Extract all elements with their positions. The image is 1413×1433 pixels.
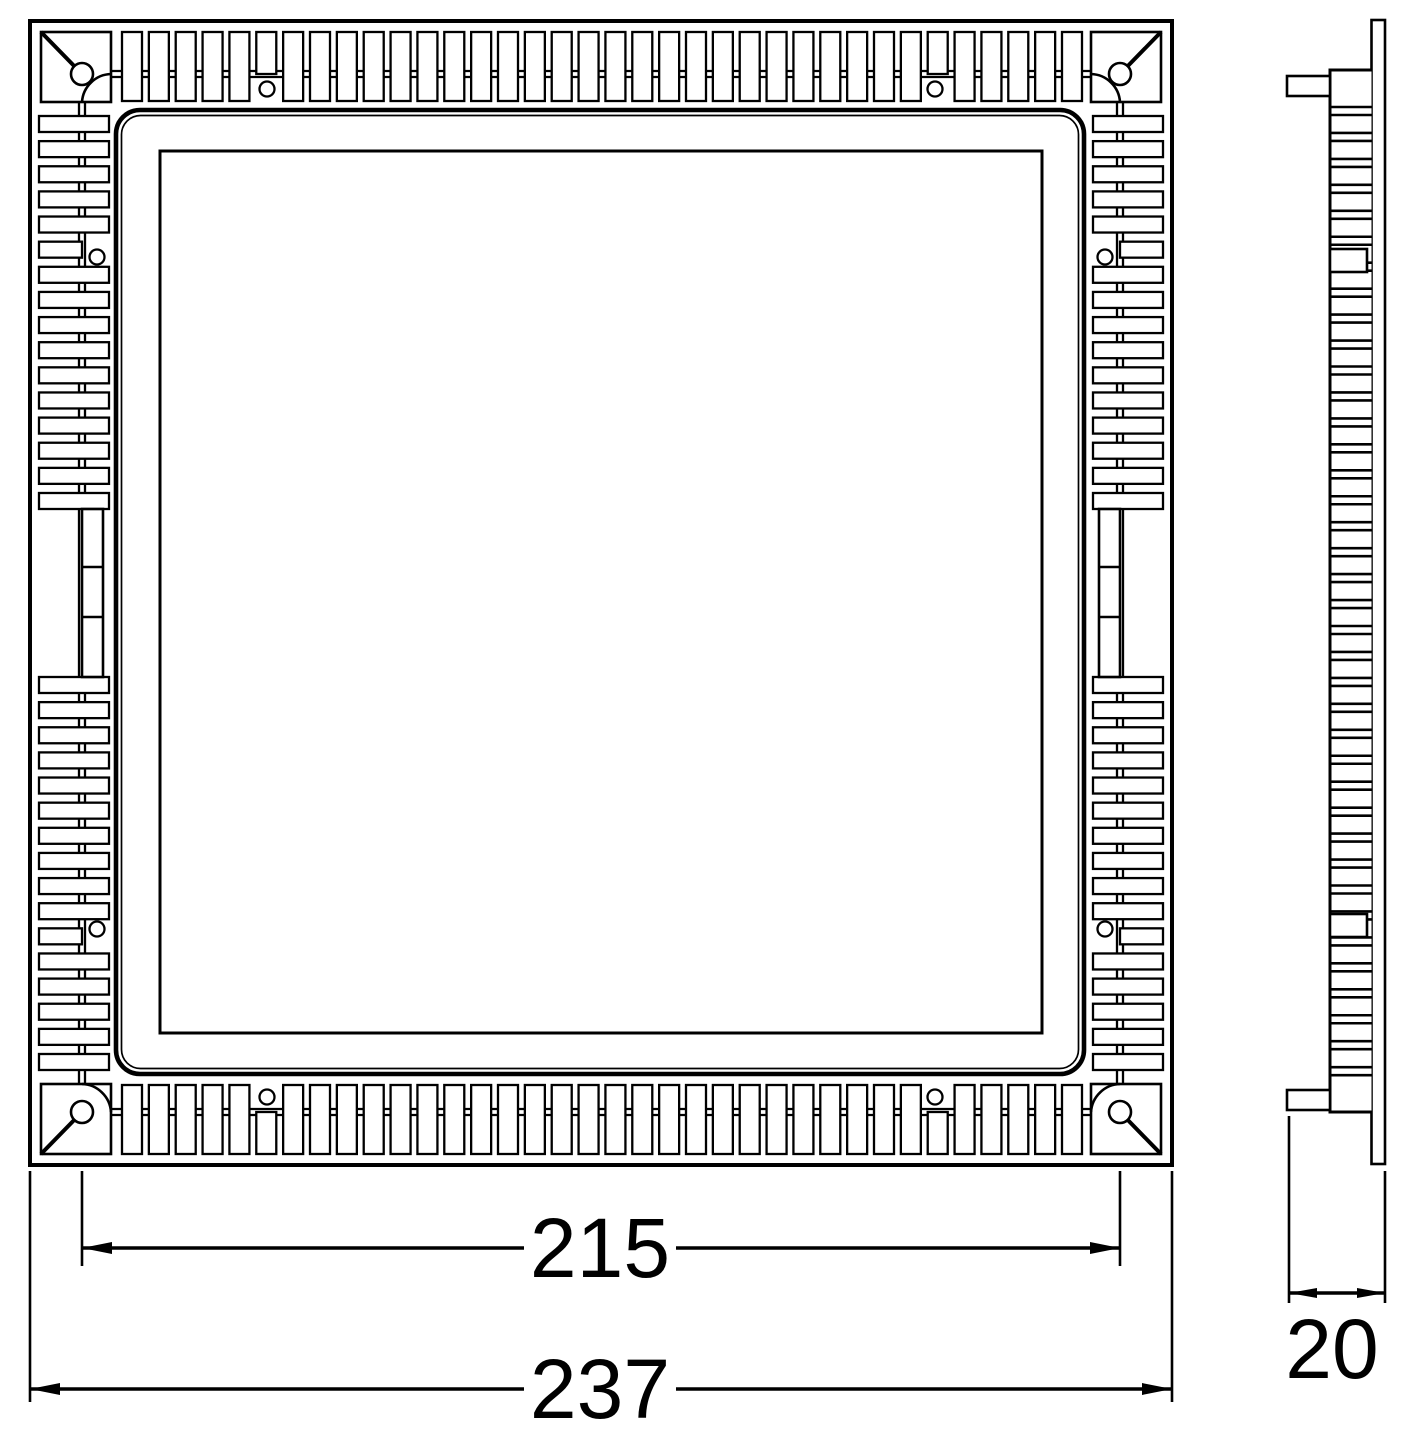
dimension-arrow xyxy=(1090,1242,1120,1254)
heatsink-fin xyxy=(39,702,109,718)
heatsink-fin xyxy=(39,1029,109,1045)
heatsink-fin xyxy=(149,32,169,101)
heatsink-fin xyxy=(39,752,109,768)
heatsink-fin xyxy=(955,1085,975,1154)
heatsink-fin xyxy=(1093,828,1163,844)
dimension-arrow xyxy=(1357,1288,1385,1298)
heatsink-fin xyxy=(256,32,276,74)
heatsink-fin xyxy=(256,1112,276,1154)
heatsink-fin xyxy=(1093,443,1163,459)
heatsink-fin xyxy=(283,1085,303,1154)
heatsink-fin xyxy=(820,32,840,101)
heatsink-fin xyxy=(122,32,142,101)
heatsink-fin xyxy=(847,1085,867,1154)
heatsink-fin xyxy=(740,32,760,101)
heatsink-fin xyxy=(1062,32,1082,101)
heatsink-fin xyxy=(1093,116,1163,132)
heatsink-fin xyxy=(847,32,867,101)
bezel-outer xyxy=(116,110,1084,1074)
heatsink-fin xyxy=(39,878,109,894)
heatsink-fin xyxy=(1093,418,1163,434)
heatsink-fin xyxy=(1008,32,1028,101)
spring-arm xyxy=(1128,1120,1161,1154)
heatsink-fin xyxy=(1093,1054,1163,1070)
dimension-arrow xyxy=(1289,1288,1317,1298)
heatsink-fin xyxy=(337,32,357,101)
screw-hole xyxy=(928,1090,943,1105)
heatsink-fin xyxy=(39,317,109,333)
heatsink-fin xyxy=(1035,32,1055,101)
screw-hole xyxy=(1098,250,1113,265)
heatsink-fin xyxy=(39,267,109,283)
side-heatsink-body xyxy=(1330,70,1372,1112)
heatsink-fin xyxy=(176,32,196,101)
heatsink-fin xyxy=(1062,1085,1082,1154)
side-front-flange xyxy=(1372,20,1386,1164)
screw-hole xyxy=(1098,922,1113,937)
light-panel xyxy=(160,151,1042,1033)
side-mount-tab-top xyxy=(1287,76,1330,96)
heatsink-fin xyxy=(1093,1029,1163,1045)
heatsink-fin xyxy=(39,953,109,969)
heatsink-fin xyxy=(39,141,109,157)
heatsink-fin xyxy=(1093,1004,1163,1020)
heatsink-fin xyxy=(1093,903,1163,919)
heatsink-fin xyxy=(686,1085,706,1154)
heatsink-fin xyxy=(955,32,975,101)
heatsink-fin xyxy=(632,32,652,101)
heatsink-fin xyxy=(1093,392,1163,408)
heatsink-fin xyxy=(525,32,545,101)
heatsink-fin xyxy=(39,392,109,408)
heatsink-fin xyxy=(793,32,813,101)
heatsink-fin xyxy=(39,443,109,459)
heatsink-fin xyxy=(39,1054,109,1070)
heatsink-fin xyxy=(229,1085,249,1154)
heatsink-fin xyxy=(820,1085,840,1154)
heatsink-fin xyxy=(39,116,109,132)
heatsink-fin xyxy=(39,367,109,383)
mid-latch-bars xyxy=(82,509,1120,677)
drawing-canvas: 215 237 20 xyxy=(0,0,1413,1433)
heatsink-fin xyxy=(1093,979,1163,995)
heatsink-fin xyxy=(39,418,109,434)
spring-pivot xyxy=(1109,63,1131,85)
heatsink-fin xyxy=(337,1085,357,1154)
heatsink-fin xyxy=(1093,166,1163,182)
heatsink-fin xyxy=(1093,468,1163,484)
spring-arm xyxy=(41,1120,74,1154)
spring-arm xyxy=(41,32,74,66)
heatsink-fin xyxy=(901,1085,921,1154)
heatsink-fin xyxy=(1093,317,1163,333)
heatsink-fin xyxy=(39,778,109,794)
heatsink-fin xyxy=(176,1085,196,1154)
heatsink-fin xyxy=(1093,367,1163,383)
heatsink-fin xyxy=(39,828,109,844)
rails xyxy=(79,71,1123,1115)
heatsink-fin xyxy=(605,32,625,101)
side-screw-boss-upper xyxy=(1330,249,1367,272)
heatsink-fin xyxy=(1035,1085,1055,1154)
heatsink-fin xyxy=(1093,878,1163,894)
heatsink-fin xyxy=(605,1085,625,1154)
dimension-label-overall: 237 xyxy=(530,1342,670,1433)
heatsink-fin xyxy=(901,32,921,101)
heatsink-fin xyxy=(1093,493,1163,509)
fins-top xyxy=(122,32,1082,101)
heatsink-fin xyxy=(39,242,82,258)
spring-arm xyxy=(1128,32,1161,66)
heatsink-fin xyxy=(1093,803,1163,819)
heatsink-fin xyxy=(981,1085,1001,1154)
dimension-arrow xyxy=(1142,1383,1172,1395)
heatsink-fin xyxy=(1093,702,1163,718)
heatsink-fin xyxy=(1093,752,1163,768)
screw-hole xyxy=(928,82,943,97)
heatsink-fin xyxy=(498,32,518,101)
heatsink-fin xyxy=(417,1085,437,1154)
heatsink-fin xyxy=(874,1085,894,1154)
heatsink-fin xyxy=(1093,953,1163,969)
side-view xyxy=(1287,20,1385,1164)
heatsink-fin xyxy=(39,191,109,207)
heatsink-fin xyxy=(39,493,109,509)
heatsink-fin xyxy=(498,1085,518,1154)
latch-bar-left xyxy=(82,509,103,677)
heatsink-fin xyxy=(1008,1085,1028,1154)
heatsink-fin xyxy=(928,32,948,74)
heatsink-fin xyxy=(981,32,1001,101)
heatsink-fin xyxy=(793,1085,813,1154)
outer-frame xyxy=(30,21,1172,1165)
heatsink-fin xyxy=(1093,853,1163,869)
heatsink-fin xyxy=(39,979,109,995)
heatsink-fin xyxy=(1120,242,1163,258)
heatsink-fin xyxy=(713,32,733,101)
spring-pivot xyxy=(71,1101,93,1123)
heatsink-fin xyxy=(39,903,109,919)
heatsink-fin xyxy=(1093,727,1163,743)
side-mount-tab-bottom xyxy=(1287,1090,1330,1110)
dimension-arrow xyxy=(82,1242,112,1254)
heatsink-fin xyxy=(417,32,437,101)
heatsink-fin xyxy=(229,32,249,101)
screw-hole xyxy=(260,1090,275,1105)
heatsink-fin xyxy=(203,32,223,101)
heatsink-fin xyxy=(39,1004,109,1020)
screw-hole xyxy=(90,922,105,937)
heatsink-fin xyxy=(579,32,599,101)
screw-hole xyxy=(90,250,105,265)
heatsink-fin xyxy=(39,677,109,693)
technical-drawing-page: 215 237 20 xyxy=(0,0,1413,1433)
bezel-inner-line xyxy=(122,116,1079,1069)
heatsink-fin xyxy=(740,1085,760,1154)
heatsink-fin xyxy=(310,32,330,101)
heatsink-fin xyxy=(444,1085,464,1154)
heatsink-fin xyxy=(659,1085,679,1154)
heatsink-fin xyxy=(39,217,109,233)
heatsink-fin xyxy=(686,32,706,101)
heatsink-fin xyxy=(39,727,109,743)
heatsink-fin xyxy=(39,803,109,819)
heatsink-fin xyxy=(1093,778,1163,794)
heatsink-fin xyxy=(1093,217,1163,233)
heatsink-fin xyxy=(39,166,109,182)
heatsink-fin xyxy=(444,32,464,101)
heatsink-fin xyxy=(471,1085,491,1154)
heatsink-fin xyxy=(39,468,109,484)
spring-pivot xyxy=(1109,1101,1131,1123)
heatsink-fin xyxy=(1120,928,1163,944)
dimension-label-inner: 215 xyxy=(530,1201,670,1295)
heatsink-fin xyxy=(552,32,572,101)
corner-brackets xyxy=(41,32,1161,1154)
heatsink-fin xyxy=(552,1085,572,1154)
heatsink-fin xyxy=(1093,677,1163,693)
heatsink-fin xyxy=(659,32,679,101)
dimension-arrow xyxy=(30,1383,60,1395)
heatsink-fin xyxy=(1093,191,1163,207)
screw-hole xyxy=(260,82,275,97)
heatsink-fin xyxy=(928,1112,948,1154)
heatsink-fin xyxy=(1093,342,1163,358)
heatsink-fin xyxy=(579,1085,599,1154)
spring-pivots xyxy=(71,63,1131,1123)
heatsink-fin xyxy=(39,928,82,944)
heatsink-fin xyxy=(471,32,491,101)
heatsink-fin xyxy=(874,32,894,101)
heatsink-fin xyxy=(391,32,411,101)
heatsink-fin xyxy=(632,1085,652,1154)
spring-pivot xyxy=(71,63,93,85)
heatsink-fin xyxy=(1093,141,1163,157)
heatsink-fin xyxy=(203,1085,223,1154)
heatsink-fin xyxy=(767,1085,787,1154)
fins-bottom xyxy=(122,1085,1082,1154)
heatsink-fin xyxy=(122,1085,142,1154)
front-view xyxy=(30,21,1172,1165)
heatsink-fin xyxy=(767,32,787,101)
heatsink-fin xyxy=(283,32,303,101)
heatsink-fin xyxy=(39,853,109,869)
heatsink-fin xyxy=(310,1085,330,1154)
heatsink-fin xyxy=(149,1085,169,1154)
heatsink-fin xyxy=(1093,267,1163,283)
heatsink-fin xyxy=(1093,292,1163,308)
dimension-label-depth: 20 xyxy=(1285,1302,1378,1396)
heatsink-fin xyxy=(39,342,109,358)
heatsink-fin xyxy=(525,1085,545,1154)
latch-bar-right xyxy=(1099,509,1120,677)
heatsink-fin xyxy=(364,32,384,101)
heatsink-fin xyxy=(391,1085,411,1154)
side-screw-boss-lower xyxy=(1330,914,1367,937)
heatsink-fin xyxy=(713,1085,733,1154)
heatsink-fin xyxy=(39,292,109,308)
heatsink-fin xyxy=(364,1085,384,1154)
